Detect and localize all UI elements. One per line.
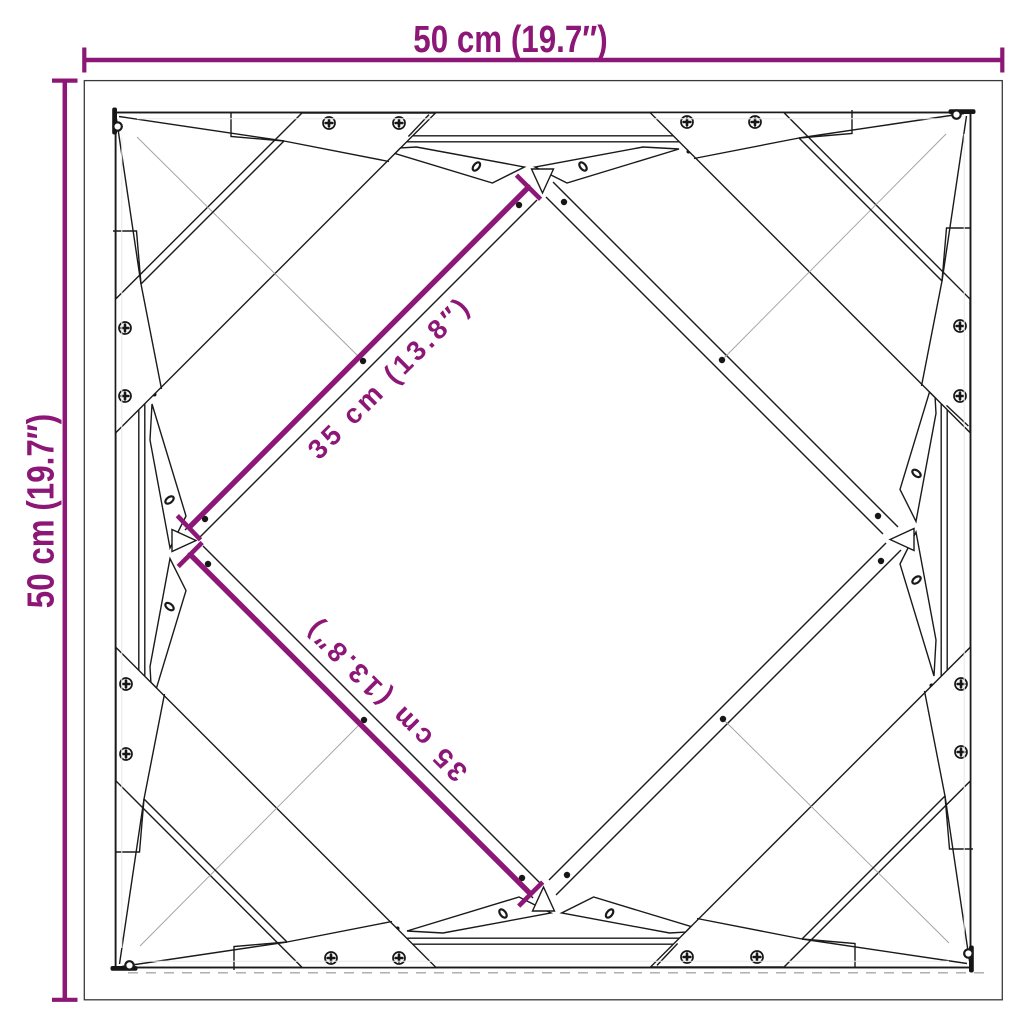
svg-text:50 cm (19.7″): 50 cm (19.7″) (20, 414, 63, 608)
svg-text:50 cm (19.7″): 50 cm (19.7″) (413, 18, 607, 61)
